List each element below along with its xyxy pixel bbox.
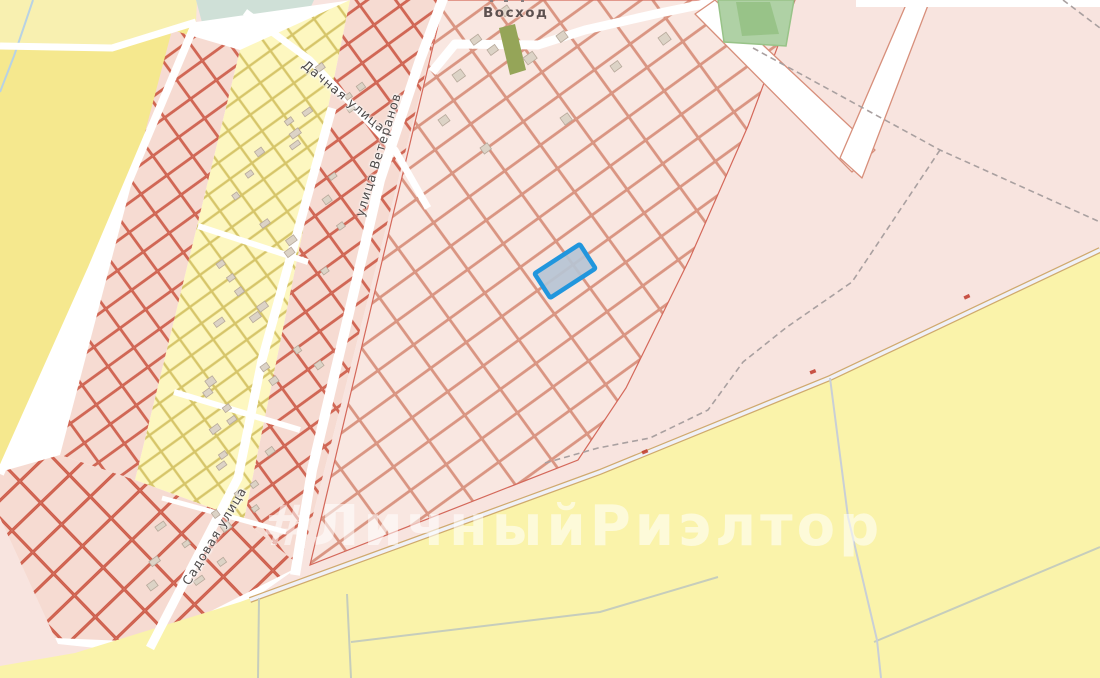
path-1 <box>258 598 259 678</box>
map-viewport[interactable]: Восход Дачная улица улица Ветеранов Садо… <box>0 0 1100 678</box>
park-area <box>718 0 794 46</box>
map-canvas <box>0 0 1100 678</box>
